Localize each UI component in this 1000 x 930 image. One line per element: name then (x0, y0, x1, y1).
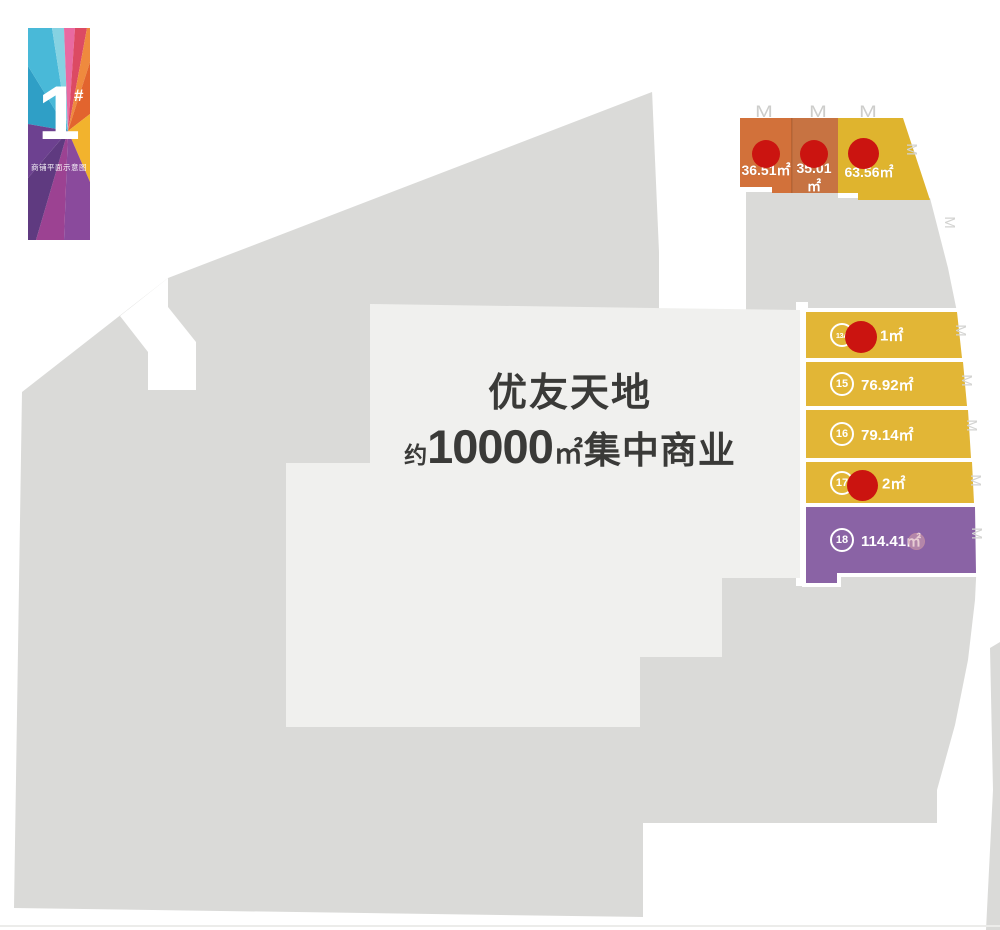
stair-icon: M (903, 143, 920, 156)
watermark-icon (908, 533, 925, 550)
road-sliver-shape (986, 642, 1000, 930)
building-desc-suffix: 集中商业 (584, 420, 736, 474)
unit-area: 1㎡ (880, 325, 903, 346)
unit-number-badge: 15 (830, 372, 854, 396)
stair-icon: M (941, 216, 958, 229)
building-label: 优友天地 约10000㎡集中商业 (330, 362, 810, 474)
sold-dot (845, 321, 877, 353)
photo-edge-line (0, 925, 1000, 927)
unit-row-17[interactable]: 17 2㎡ (806, 462, 990, 503)
door-icon: M (748, 102, 781, 122)
badge-caption: 商铺平面示意图 (28, 162, 90, 173)
unit-row-18[interactable]: 18 114.41㎡ (806, 507, 1000, 573)
sold-dot (800, 140, 828, 168)
sold-dot (752, 140, 780, 168)
walkway-band (652, 90, 746, 310)
door-icon: M (852, 102, 885, 122)
building-desc-prefix: 约 (404, 436, 427, 470)
unit-number-badge: 16 (830, 422, 854, 446)
building-number-badge: 1 # 商铺平面示意图 (28, 28, 90, 240)
unit-number-badge: 18 (830, 528, 854, 552)
unit-row-15[interactable]: 15 76.92㎡ (806, 362, 990, 406)
sold-dot (847, 470, 878, 501)
badge-hash: # (74, 86, 83, 106)
floorplan-canvas: M M M M M M M M M M 优友天地 约10000㎡集中商业 36.… (0, 0, 1000, 930)
unit-area: 79.14㎡ (861, 424, 914, 445)
unit-area: 2㎡ (882, 472, 905, 493)
building-desc-number: 10000 (427, 423, 553, 470)
building-desc-unit: ㎡ (554, 430, 583, 472)
unit-area: 76.92㎡ (861, 374, 914, 395)
building-name: 优友天地 (330, 362, 810, 418)
building-desc: 约10000㎡集中商业 (330, 420, 810, 474)
sold-dot (848, 138, 879, 169)
door-icon: M (802, 102, 835, 122)
unit-row-16[interactable]: 16 79.14㎡ (806, 410, 990, 458)
unit-row-13A[interactable]: 13A 1㎡ (806, 312, 990, 358)
